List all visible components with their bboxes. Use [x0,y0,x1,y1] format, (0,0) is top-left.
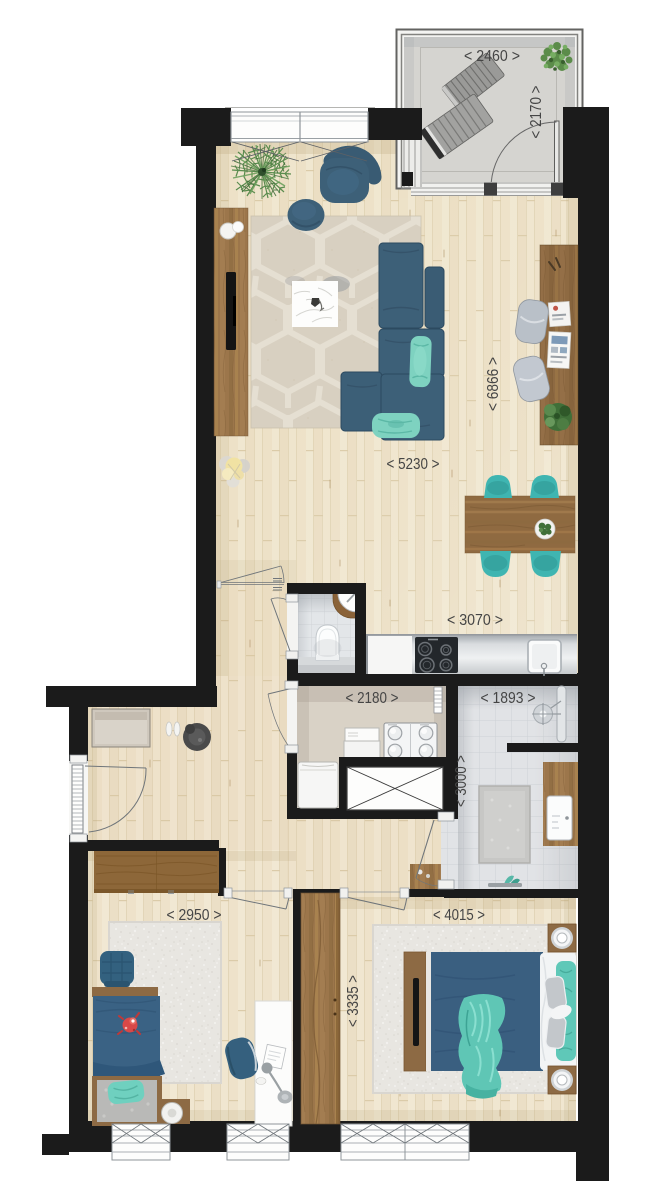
svg-text:< 2180 >: < 2180 > [346,690,399,707]
svg-text:< 5230 >: < 5230 > [387,456,440,473]
svg-text:< 3070 >: < 3070 > [447,612,503,629]
svg-text:< 1893 >: < 1893 > [481,690,536,707]
svg-text:< 3335 >: < 3335 > [345,975,362,1027]
svg-text:< 4015 >: < 4015 > [433,907,485,924]
svg-text:< 2950 >: < 2950 > [167,907,222,924]
svg-text:< 2170 >: < 2170 > [528,86,545,139]
svg-text:< 3000 >: < 3000 > [453,755,470,807]
svg-text:< 2460 >: < 2460 > [464,48,520,65]
svg-text:< 6866 >: < 6866 > [485,357,502,411]
